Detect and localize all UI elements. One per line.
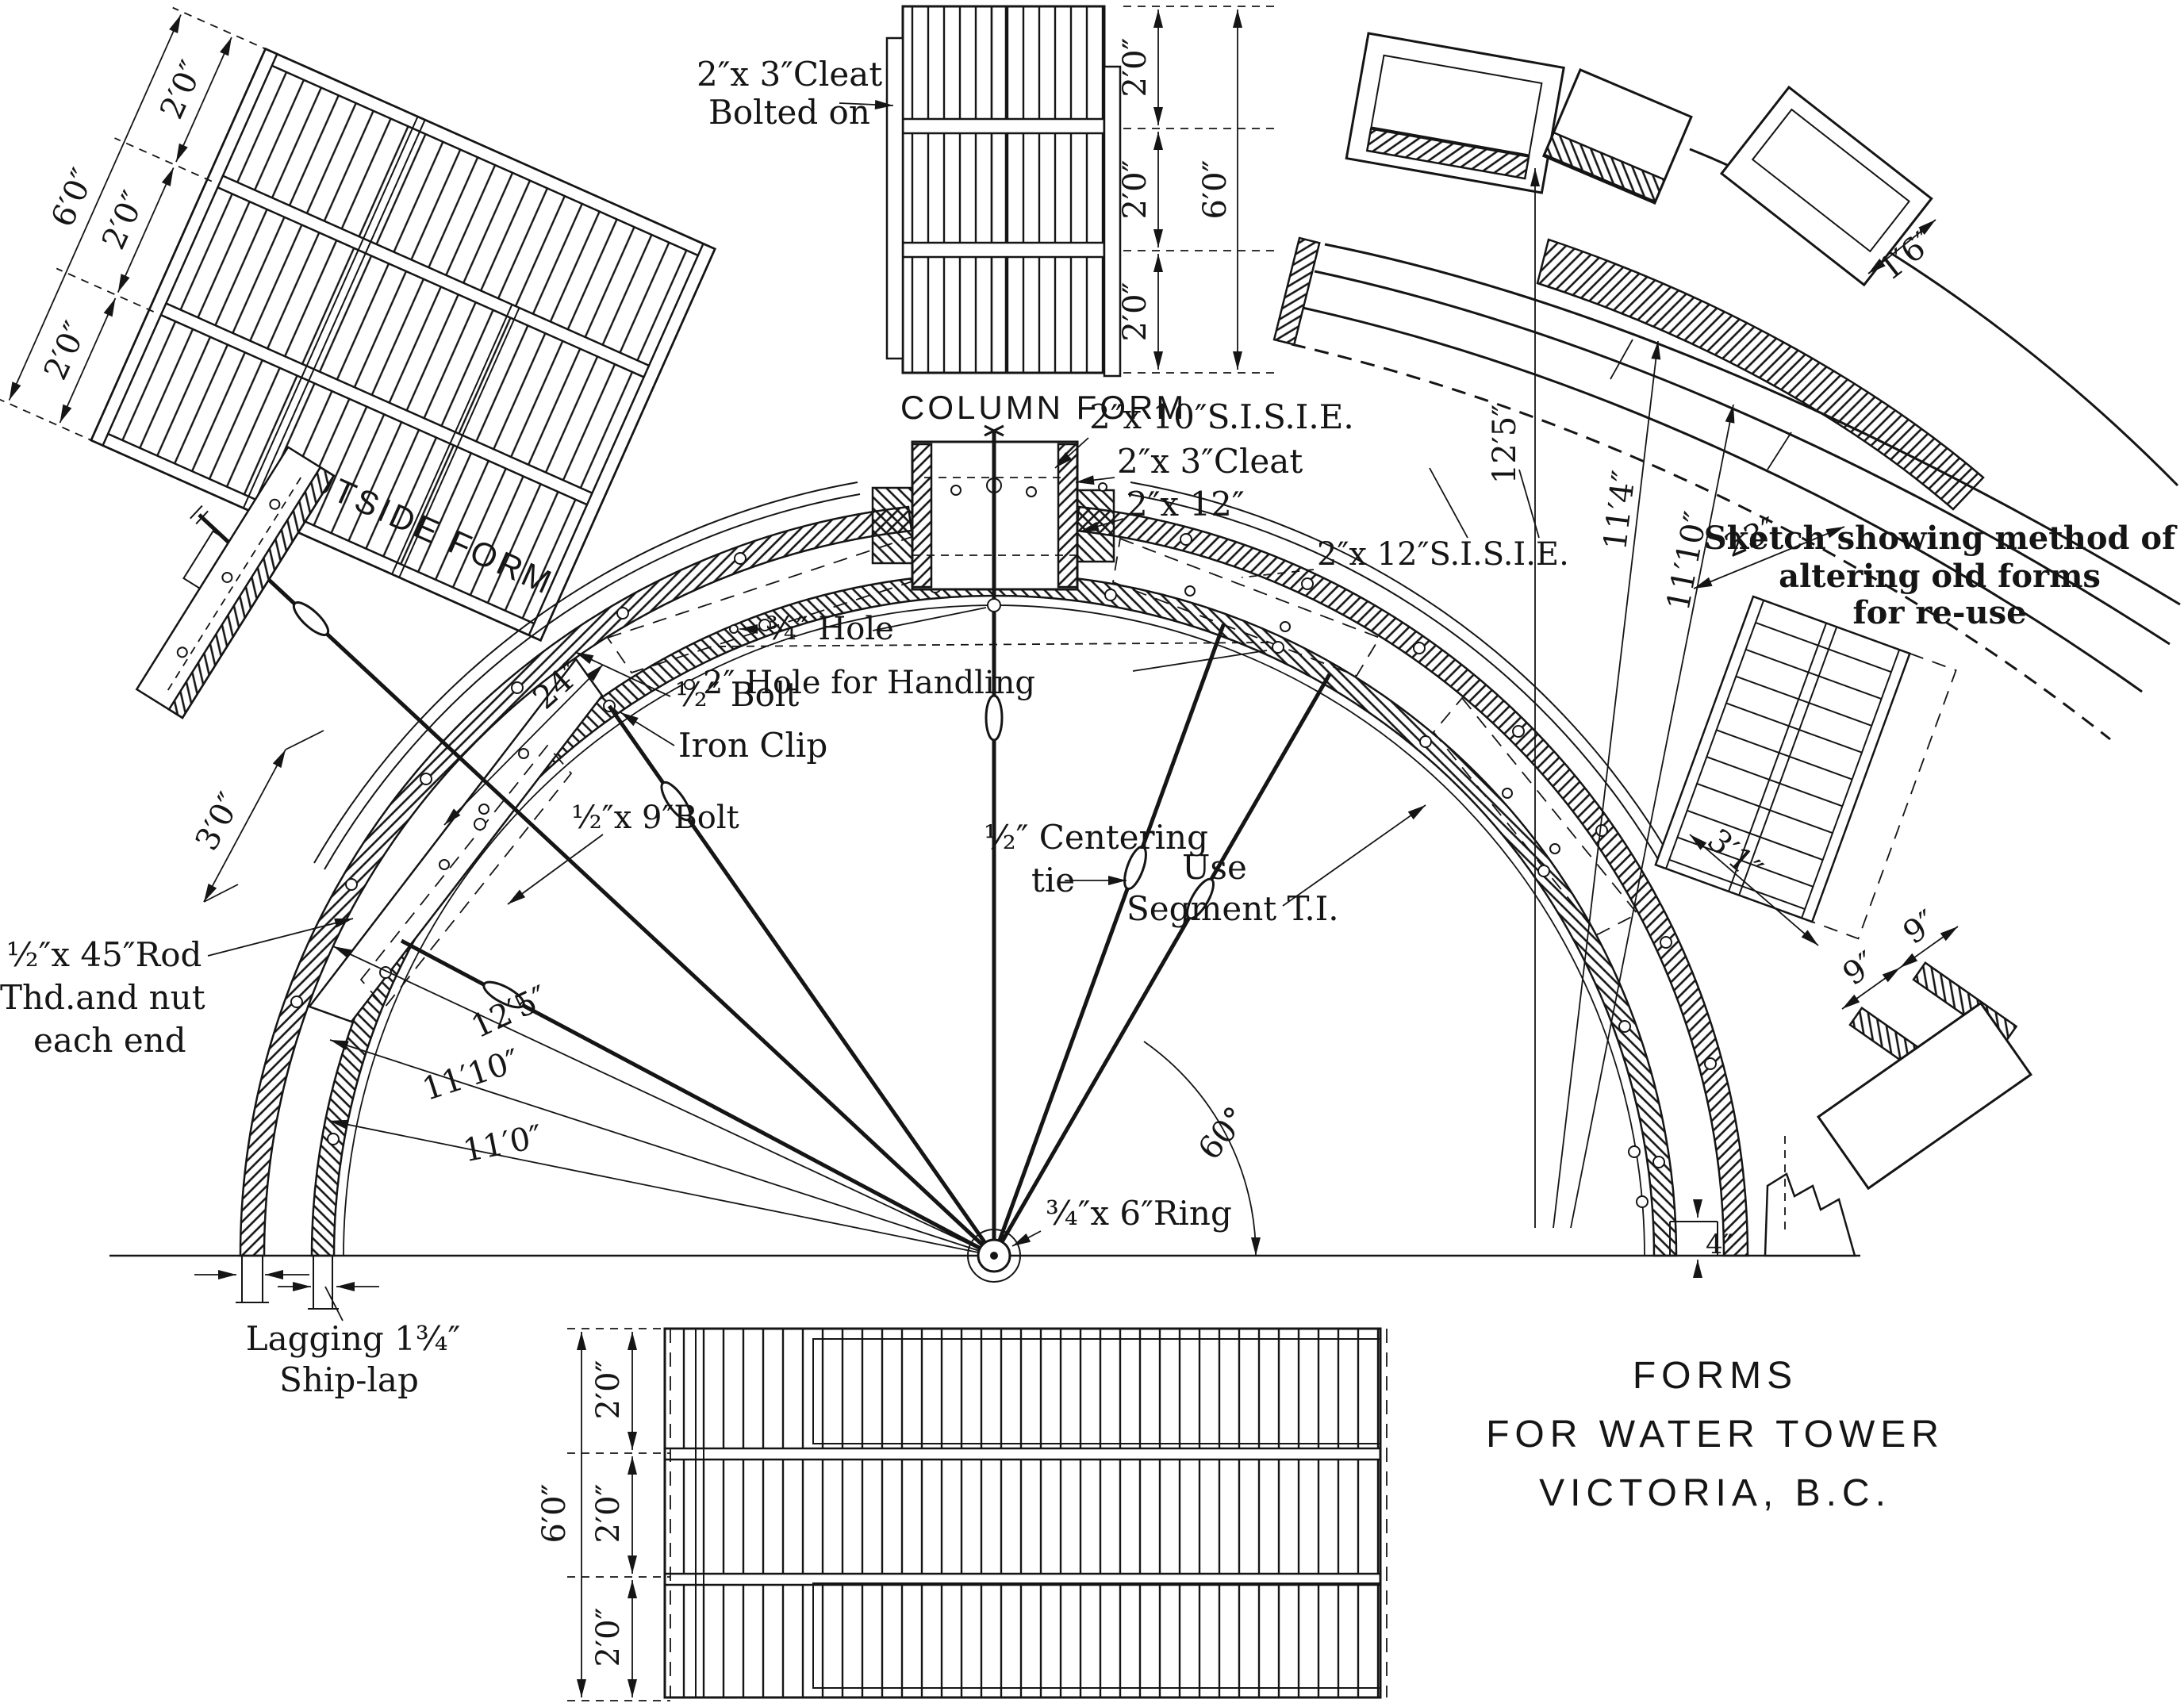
outside-form-dim-seg3: 2′0″ [153, 56, 210, 125]
sketch-caption-2: altering old forms [1779, 558, 2101, 595]
lagging-label-2: Ship-lap [279, 1360, 419, 1399]
bolt-9-label: ½″x 9″Bolt [571, 800, 739, 836]
ring-label: ¾″x 6″Ring [1046, 1194, 1232, 1233]
bottom-form-dim-seg1: 2′0″ [590, 1360, 627, 1420]
bottom-form-dim-seg3: 2′0″ [590, 1608, 627, 1667]
sketch-caption-3: for re-use [1852, 594, 2026, 631]
outside-form-slats [91, 49, 715, 640]
sisie-2x10-label: 2″x 10″S.I.S.I.E. [1089, 397, 1354, 436]
cleat-note-line1: 2″x 3″Cleat [697, 55, 882, 94]
dim-9a-label: 9″ [1837, 945, 1883, 993]
column-form-dim-total: 6′0″ [1197, 160, 1234, 220]
title-line-1: FORMS [1633, 1355, 1798, 1397]
reuse-radius-1: 12′5″ [1487, 405, 1523, 484]
title-line-3: VICTORIA, B.C. [1539, 1472, 1891, 1514]
turnbuckle [986, 696, 1002, 740]
broken-edge-block [1765, 1174, 1855, 1256]
handling-hole [988, 599, 1000, 612]
wall-feet [236, 1256, 339, 1309]
bottom-form-dim-seg2: 2′0″ [590, 1484, 627, 1544]
hole-small-label: ¾″ Hole [766, 611, 894, 647]
use-segment-label-1: Use [1182, 848, 1247, 887]
bottom-form-slats [665, 1329, 1380, 1697]
dim-9b-label: 9″ [1897, 903, 1944, 952]
reuse-radius-2: 11′4″ [1597, 469, 1643, 552]
cleat-2x3-label: 2″x 3″Cleat [1117, 442, 1303, 481]
ladder-strip [1656, 596, 1956, 938]
radius-line-11-0 [329, 1121, 994, 1256]
sisie-2x12-label: 2″x 12″S.I.S.I.E. [1317, 536, 1569, 573]
title-block: FORMS FOR WATER TOWER VICTORIA, B.C. [1486, 1355, 1944, 1514]
new-form-box-2 [1544, 70, 1691, 203]
outside-form-dim-seg2: 2′0″ [95, 186, 152, 255]
tower-form-plan: 12′5″ 11′10″ 11′0″ 60° ¾″x 6″Ring 3′0″ 2… [0, 397, 1860, 1399]
plank-2x12-label: 2″x 12″ [1127, 485, 1245, 524]
title-line-2: FOR WATER TOWER [1486, 1414, 1944, 1456]
dim-3ft-label: 3′0″ [189, 787, 249, 857]
rod-label-3: each end [33, 1021, 186, 1060]
rod-label-1: ½″x 45″Rod [6, 935, 202, 974]
bottom-form-panel: 2′0″ 2′0″ 2′0″ 6′0″ [536, 1329, 1387, 1701]
rod-label-2: Thd.and nut [0, 978, 205, 1017]
blueprint-canvas: 2′0″ 2′0″ 2′0″ 6′0″ OUTSIDE FORM 2′0″ 2′… [0, 0, 2184, 1707]
column-form-dim-seg2: 2′0″ [1117, 160, 1153, 220]
dim-4in-label: 4″ [1706, 1229, 1733, 1260]
column-form-dim-seg1: 2′0″ [1117, 38, 1153, 98]
lagging-label-1: Lagging 1¾″ [246, 1319, 461, 1358]
drawing-page: 2′0″ 2′0″ 2′0″ 6′0″ OUTSIDE FORM 2′0″ 2′… [0, 0, 2184, 1707]
new-form-box [1346, 33, 1564, 193]
bolt-half-label: ½″ Bolt [675, 675, 799, 714]
outside-form-panel: 2′0″ 2′0″ 2′0″ 6′0″ [0, 0, 715, 640]
outside-form-dim-total: 6′0″ [44, 163, 102, 232]
column-form-dim-seg3: 2′0″ [1117, 282, 1153, 342]
segment-board [309, 659, 602, 1022]
use-segment-label-2: Segment T.I. [1127, 889, 1339, 928]
outside-form-dim-seg1: 2′0″ [37, 316, 94, 386]
turnbuckle [290, 598, 333, 640]
iron-clip-label: Iron Clip [678, 726, 827, 765]
cleat-note-line2: Bolted on [708, 93, 870, 132]
stepped-block [1818, 1003, 2031, 1189]
bolt-holes [291, 534, 1716, 1207]
bottom-form-dim-total: 6′0″ [536, 1484, 573, 1544]
column-form-panel: 2′0″ 2′0″ 2′0″ 6′0″ [887, 6, 1279, 376]
angle-60-label: 60° [1192, 1100, 1255, 1167]
centering-label-1: ½″ Centering [984, 818, 1208, 857]
